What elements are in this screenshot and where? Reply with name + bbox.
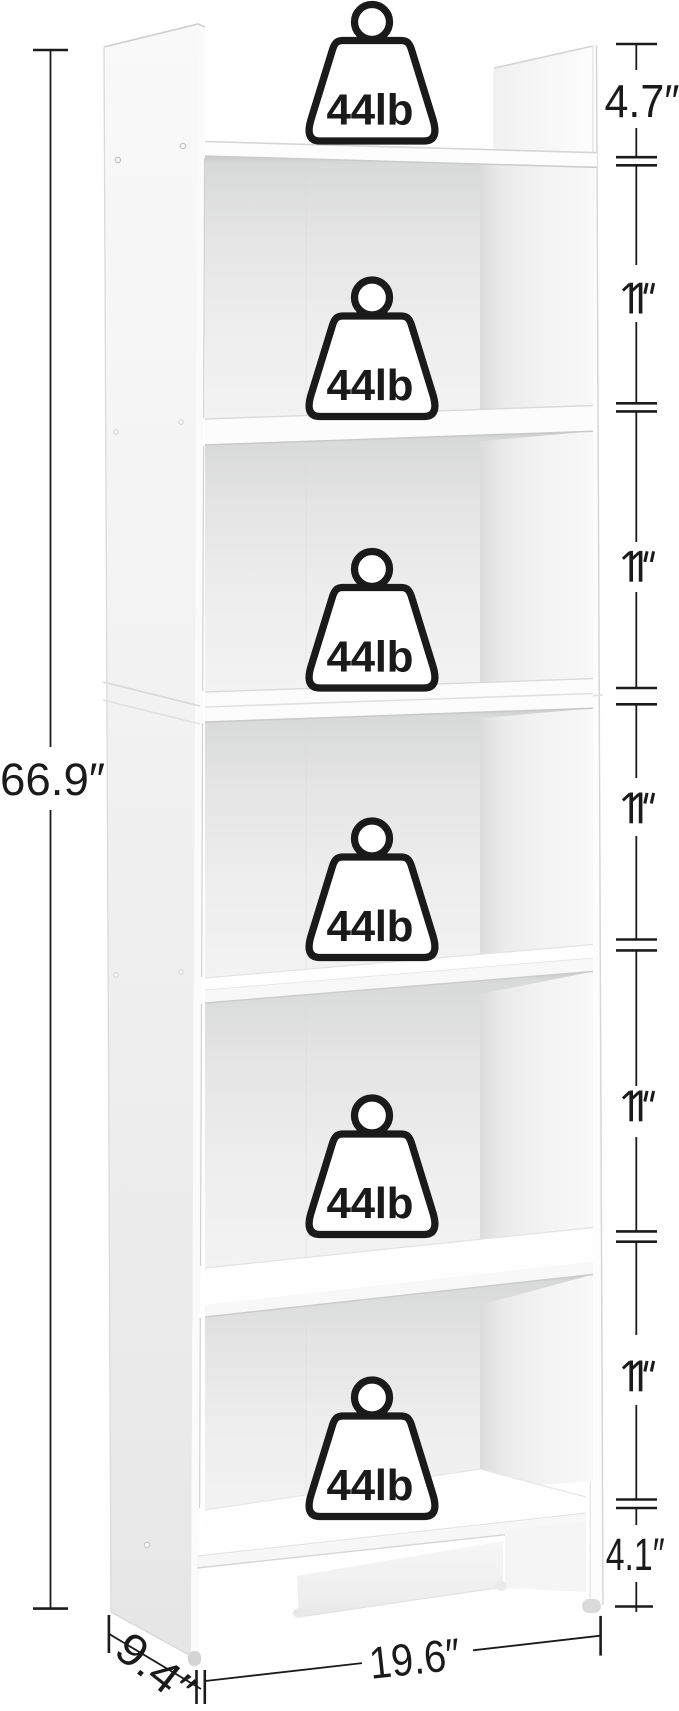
svg-text:66.9″: 66.9″ [0,754,105,805]
svg-text:19.6″: 19.6″ [367,1628,463,1689]
svg-text:4.1″: 4.1″ [606,1529,665,1580]
svg-text:4.7″: 4.7″ [605,75,679,127]
